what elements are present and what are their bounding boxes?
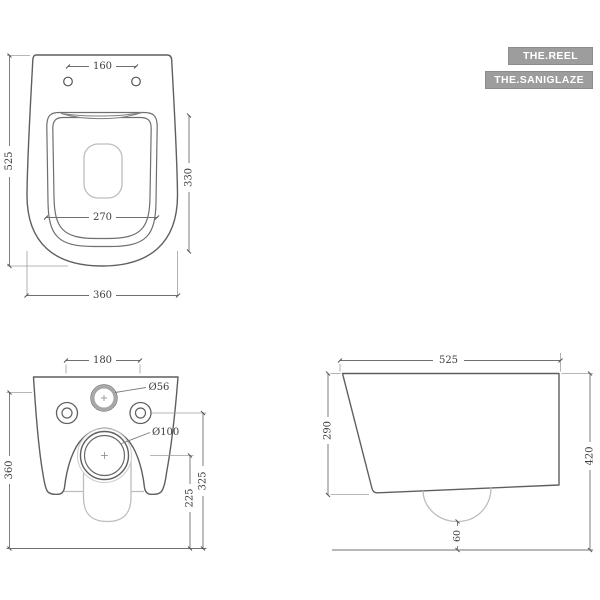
dim-top-seat-depth: 330: [184, 168, 195, 187]
dim-side-front-height: 290: [323, 421, 334, 440]
trap-arc: [423, 488, 491, 522]
dim-top-seat-width: 270: [93, 212, 112, 223]
dim-front-inlet-height: 325: [198, 471, 209, 490]
dim-front-hole-spacing: 180: [93, 355, 112, 366]
mounting-hole-plan-right: [132, 77, 141, 86]
technical-drawing-svg: 160 270 330 525 360: [0, 0, 600, 600]
pan-side-outline: [343, 374, 560, 493]
pan-plan-outline: [27, 55, 178, 266]
side-view: 525 290 420 60: [323, 353, 596, 550]
dim-top-width-total: 360: [93, 290, 112, 301]
dim-side-height-total: 420: [585, 446, 596, 465]
dim-side-depth-total: 525: [439, 355, 458, 366]
dim-front-height-total: 360: [4, 460, 15, 479]
badge-saniglaze: THE.SANIGLAZE: [485, 71, 593, 89]
dim-top-hole-spacing: 160: [93, 61, 112, 72]
mounting-hole-plan-left: [64, 77, 73, 86]
mounting-hole-front-left-inner: [62, 408, 72, 418]
badge-product-name: THE.REEL: [508, 47, 593, 65]
front-view: 180 Ø56 Ø100 360 225 325: [4, 355, 209, 549]
dim-top-depth-total: 525: [4, 151, 15, 170]
top-view: 160 270 330 525 360: [4, 55, 195, 301]
dim-front-outlet-height: 225: [185, 488, 196, 507]
technical-drawing-page: 160 270 330 525 360: [0, 0, 600, 600]
label-outlet-diameter: Ø100: [152, 427, 179, 438]
mounting-hole-front-right-inner: [136, 408, 146, 418]
label-inlet-diameter: Ø56: [149, 382, 170, 393]
dim-side-outlet-clearance: 60: [452, 530, 463, 542]
